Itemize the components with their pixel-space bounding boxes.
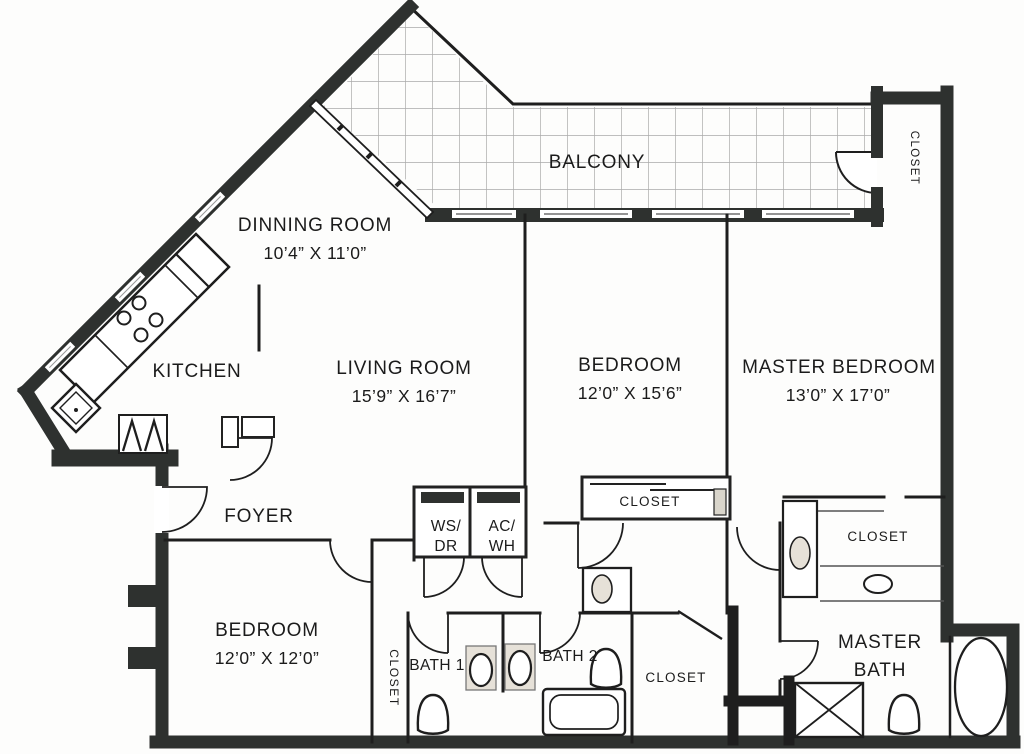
foyer-label: FOYER	[224, 506, 293, 527]
bath1-sink-icon	[470, 654, 492, 686]
ac-wh-label-1: AC/	[488, 518, 515, 535]
ac-wh-label-2: WH	[489, 538, 516, 555]
balcony-window-slits	[452, 210, 854, 218]
wall-foyer-bedroom3	[165, 540, 414, 560]
master-bedroom-dims: 13’0” X 17’0”	[786, 385, 890, 405]
ws-dr-label-2: DR	[434, 538, 457, 555]
bedroom3-dims: 12’0” X 12’0”	[215, 648, 319, 668]
pantry-doors	[119, 415, 167, 453]
master-bath-label-2: BATH	[854, 660, 906, 681]
master-bath-label-1: MASTER	[838, 632, 922, 653]
balcony-area	[323, 7, 877, 208]
bath2-door	[540, 613, 580, 653]
balcony-label: BALCONY	[549, 152, 645, 173]
wall-kitchen-corner	[26, 391, 62, 449]
bedroom3-door	[330, 540, 372, 582]
master-cabinet-sink-icon	[790, 537, 810, 569]
closet-handle	[714, 489, 726, 515]
shower-icon	[795, 683, 863, 737]
balcony-closet-label: CLOSET	[908, 131, 920, 185]
foyer-closet-panel-2	[242, 417, 274, 437]
foyer-closet-panel-1	[222, 417, 238, 447]
bath1-toilet-icon	[418, 695, 448, 734]
dining-room-label: DINNING ROOM	[238, 215, 392, 236]
bath2-tub-icon	[543, 689, 625, 735]
wall-west-nub-1	[128, 585, 156, 607]
master-bedroom-label: MASTER BEDROOM	[742, 357, 936, 378]
ws-dr-label-1: WS/	[431, 518, 462, 535]
bath-closet-door	[678, 611, 722, 639]
bedroom2-door	[578, 523, 623, 568]
hall-vanity-sink-icon	[592, 575, 612, 603]
master-tub-icon	[955, 638, 1007, 736]
bedroom2-label: BEDROOM	[578, 355, 682, 376]
balcony-tile-floor	[323, 12, 871, 208]
bath-closet-label: CLOSET	[645, 670, 706, 685]
floor-plan-drawing: BALCONY CLOSET DINNING ROOM 10’4” X 11’0…	[0, 0, 1024, 754]
ac-wh-door	[482, 557, 522, 597]
kitchen-label: KITCHEN	[153, 361, 242, 382]
master-vanity-sink-icon	[864, 575, 892, 593]
dining-room-dims: 10’4” X 11’0”	[263, 243, 366, 263]
living-room-label: LIVING ROOM	[336, 358, 471, 379]
floor-plan-page: BALCONY CLOSET DINNING ROOM 10’4” X 11’0…	[0, 0, 1024, 754]
living-room-dims: 15’9” X 16’7”	[352, 386, 456, 406]
ws-dr-door	[424, 557, 464, 597]
entry-opening	[154, 486, 169, 533]
hall-closet-label: CLOSET	[387, 649, 401, 707]
bath2-sink-icon	[509, 651, 531, 685]
utility-shelf-left	[421, 492, 464, 503]
bath1-door	[408, 613, 448, 653]
bath2-label: BATH 2	[542, 648, 598, 665]
master-toilet-icon	[889, 695, 919, 734]
wall-west-nub-2	[128, 647, 156, 669]
bedroom2-closet-label: CLOSET	[619, 494, 680, 509]
bedroom3-label: BEDROOM	[215, 620, 319, 641]
master-bedroom-door	[737, 527, 780, 570]
master-bath-door	[780, 641, 818, 679]
master-closet-label: CLOSET	[847, 529, 908, 544]
bath1-label: BATH 1	[409, 657, 465, 674]
bedroom2-dims: 12’0” X 15’6”	[578, 383, 682, 403]
utility-shelf-right	[477, 492, 520, 503]
